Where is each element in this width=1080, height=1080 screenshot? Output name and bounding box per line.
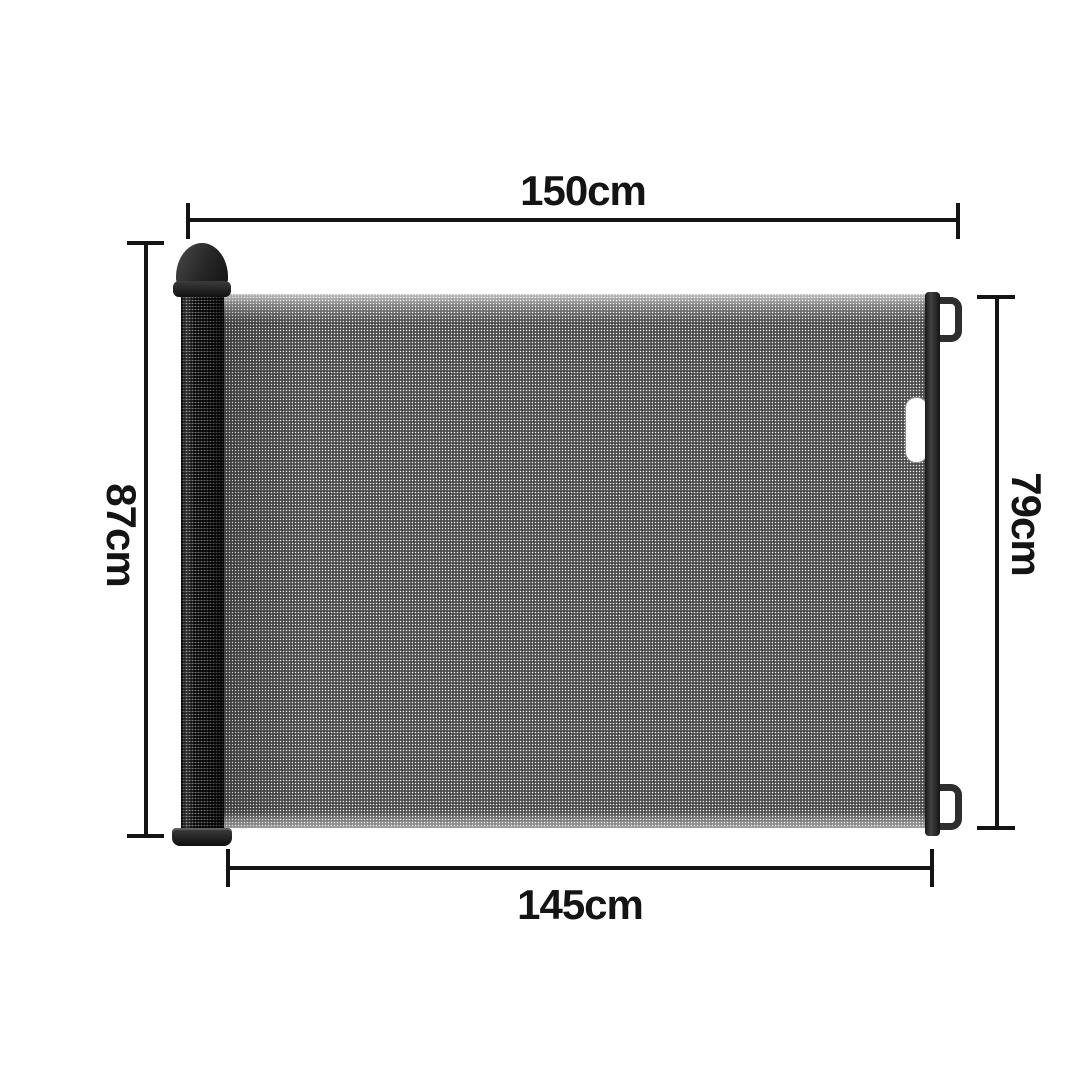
- roller-base-cap: [172, 828, 232, 846]
- left-height-label: 87cm: [100, 483, 142, 586]
- bottom-width-label: 145cm: [517, 884, 643, 926]
- left-dimension-line: [144, 243, 148, 838]
- right-dimension-tick-top: [977, 295, 1015, 299]
- right-dimension-line: [995, 297, 999, 828]
- bottom-dimension-line: [228, 866, 932, 870]
- right-height-label: 79cm: [1005, 472, 1047, 575]
- bottom-dimension-tick-left: [226, 849, 230, 887]
- left-dimension-tick-top: [127, 241, 164, 245]
- right-edge-rail: [925, 292, 940, 836]
- mesh-panel: [218, 294, 940, 828]
- roller-pole: [181, 288, 224, 834]
- gate-dimension-diagram: 150cm 87cm 79cm 145cm: [0, 0, 1080, 1080]
- left-dimension-tick-bottom: [127, 834, 164, 838]
- top-dimension-tick-left: [186, 203, 190, 239]
- top-dimension-tick-right: [956, 203, 960, 239]
- bottom-dimension-tick-right: [930, 849, 934, 887]
- roller-cap-collar: [173, 281, 231, 297]
- right-dimension-tick-bottom: [977, 826, 1015, 830]
- top-dimension-line: [188, 218, 958, 222]
- top-width-label: 150cm: [520, 170, 646, 212]
